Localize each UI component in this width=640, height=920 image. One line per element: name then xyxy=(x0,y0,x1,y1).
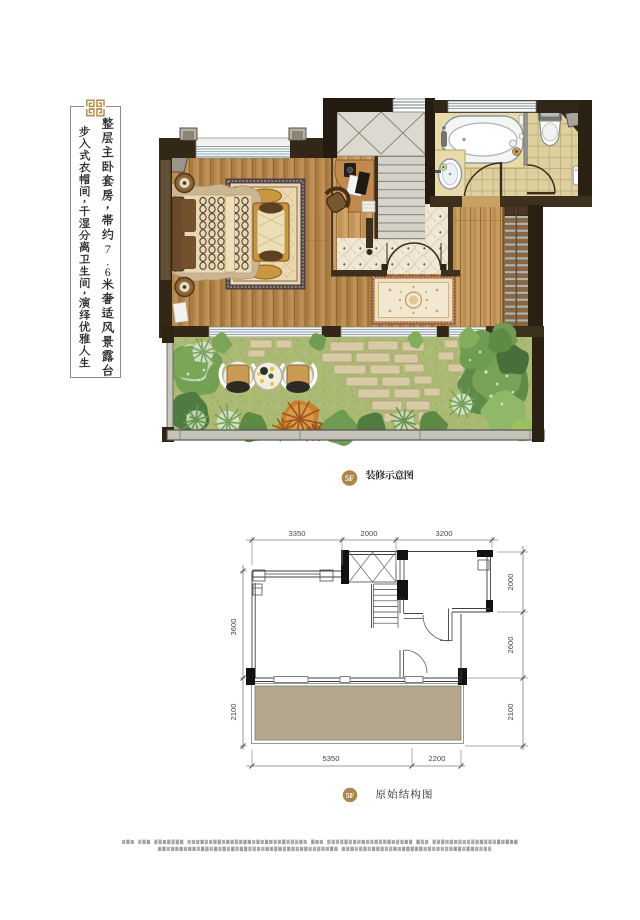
svg-text:3200: 3200 xyxy=(436,529,453,538)
svg-text:2100: 2100 xyxy=(506,704,515,721)
svg-text:2200: 2200 xyxy=(429,754,446,763)
svg-text:2600: 2600 xyxy=(506,637,515,654)
svg-text:2000: 2000 xyxy=(506,574,515,591)
svg-text:2100: 2100 xyxy=(229,704,238,721)
svg-text:5F: 5F xyxy=(345,474,354,483)
svg-text:6: 6 xyxy=(105,265,111,279)
svg-text:3600: 3600 xyxy=(229,619,238,636)
svg-text:3350: 3350 xyxy=(289,529,306,538)
svg-text:5F: 5F xyxy=(346,791,355,800)
svg-text:2000: 2000 xyxy=(361,529,378,538)
svg-text:5350: 5350 xyxy=(323,754,340,763)
